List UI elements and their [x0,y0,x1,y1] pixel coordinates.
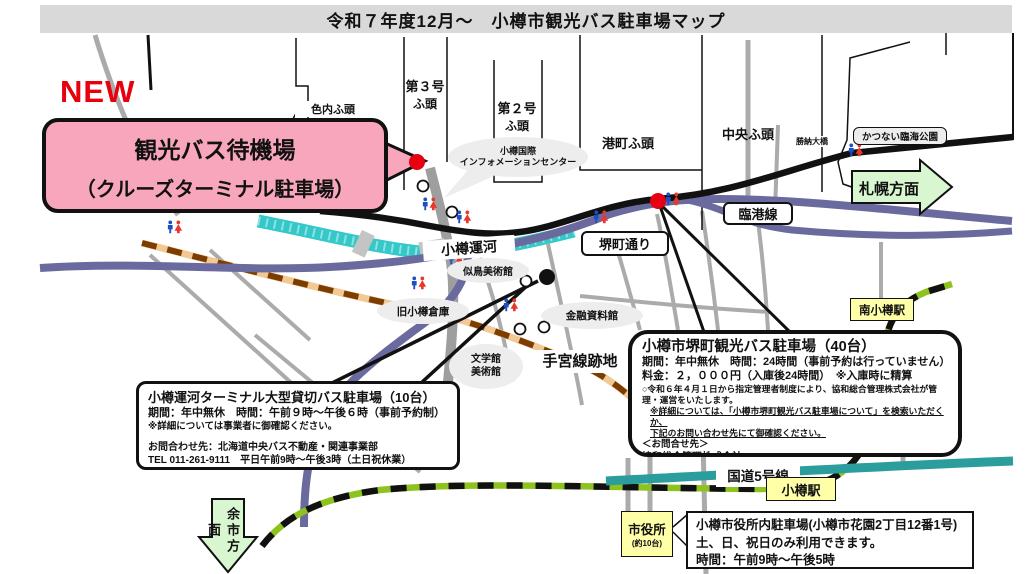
city-hall-name: 市役所 [628,519,666,538]
pier2-line2: ふ頭 [492,117,542,134]
cityhall-box-line1: 小樽市役所内駐車場(小樽市花園2丁目12番1号) [696,517,964,535]
label-katsunai-bridge: 勝納大橋 [794,136,830,147]
toilet-icon [168,221,182,234]
pier2-line1: 第２号 [492,98,542,117]
cityhall-box-line3: 時間：午前9時～午後5時 [696,552,964,569]
label-minatomachi-pier: 港町ふ頭 [592,133,664,152]
toilet-icon [457,211,471,224]
new-badge: NEW [60,74,135,110]
sakaimachi-parking-marker [650,193,666,209]
toilet-icon [412,277,426,290]
waiting-area-marker [409,154,425,170]
sakaimachi-box-title: 小樽市堺町観光バス駐車場（40台） [642,339,948,356]
label-ironai-pier: 色内ふ頭 [295,101,371,117]
finance-museum-bubble: 金融資料館 [541,302,643,329]
info-center-line1: 小樽国際 [500,146,536,157]
sakaimachi-box-contact: 協和総合管理株式会社 TEL：0134-27-2233 [642,451,948,457]
sakaimachi-box-fee: 料金：２，０００円（入庫後24時間） ※入庫時に精算 [642,370,948,384]
canal-box-period: 期間：年中無休 時間：午前９時～午後６時（事前予約制） [148,406,448,420]
label-temiya-site: 手宮線跡地 [514,350,646,373]
pier3-line1: 第３号 [402,76,448,95]
canal-box-contact2: TEL 011-261-9111 平日午前9時～午後3時（土日祝休業） [148,454,448,468]
map-graphics [0,0,1025,574]
spacer [148,433,448,441]
cityhall-box-line2: 土、日、祝日のみ利用できます。 [696,535,964,553]
canal-box-note: ※詳細については事業者に御確認ください。 [148,421,448,433]
label-chuo-pier: 中央ふ頭 [714,124,782,143]
canal-box-title: 小樽運河ターミナル大型貸切バス駐車場（10台） [148,390,448,406]
info-center-bubble: 小樽国際 インフォメーションセンター [448,137,588,177]
label-yoichi-direction: 余市方面 [216,503,242,559]
otaru-bus-parking-map: 令和７年度12月～ 小樽市観光バス駐車場マップ NEW 観光バス待機場 （クルー… [0,0,1025,574]
sakaimachi-box-period: 期間：年中無休 時間：24時間（事前予約は行っていません） [642,356,948,370]
city-hall-label: 市役所 (約10台) [621,511,673,557]
label-sapporo-direction: 札幌方面 [858,178,920,199]
literature-line1: 文学館 [471,354,501,367]
pier3-line2: ふ頭 [402,95,448,112]
waiting-area-bubble: 観光バス待機場 （クルーズターミナル駐車場） [42,118,388,213]
waiting-area-subtitle: （クルーズターミナル駐車場） [46,173,384,202]
otaru-station-label: 小樽駅 [766,477,836,501]
city-hall-capacity: (約10台) [632,538,662,549]
literature-museum-bubble: 文学館 美術館 [449,344,523,389]
canal-terminal-info-box: 小樽運河ターミナル大型貸切バス駐車場（10台） 期間：年中無休 時間：午前９時～… [136,381,460,470]
canal-terminal-marker [539,269,555,285]
sakaimachi-box-note3: 下記のお問い合わせ先にて御確認ください。 [650,428,948,439]
minami-otaru-station-label: 南小樽駅 [850,298,914,321]
sakaimachi-box-note1: ○令和６年４月１日から指定管理者制度により、協和総合管理株式会社が管理・運営をい… [642,384,948,406]
info-center-line2: インフォメーションセンター [460,157,577,168]
map-title: 令和７年度12月～ 小樽市観光バス駐車場マップ [40,5,1012,33]
sakaimachi-parking-info-box: 小樽市堺町観光バス駐車場（40台） 期間：年中無休 時間：24時間（事前予約は行… [628,330,962,457]
nitori-museum-bubble: 似鳥美術館 [447,258,529,283]
canal-box-contact1: お問合わせ先：北海道中央バス不動産・関連事業部 [148,441,448,455]
label-pier2: 第２号 ふ頭 [492,98,542,134]
literature-line2: 美術館 [471,367,501,380]
label-katsunai-park: かつない臨海公園 [853,127,947,145]
sakaimachi-box-contact-header: ＜お問合せ先＞ [642,439,948,451]
label-sakaimachi-street: 堺町通り [581,231,669,256]
label-pier3: 第３号 ふ頭 [402,76,448,112]
label-rinko-line: 臨港線 [723,202,793,225]
sakaimachi-box-note2: ※詳細については、「小樽市堺町観光バス駐車場について」を検索いただくか、 [650,406,948,428]
city-hall-parking-info-box: 小樽市役所内駐車場(小樽市花園2丁目12番1号) 土、日、祝日のみ利用できます。… [686,511,974,569]
waiting-area-title: 観光バス待機場 [46,131,384,165]
former-warehouse-bubble: 旧小樽倉庫 [377,298,469,324]
